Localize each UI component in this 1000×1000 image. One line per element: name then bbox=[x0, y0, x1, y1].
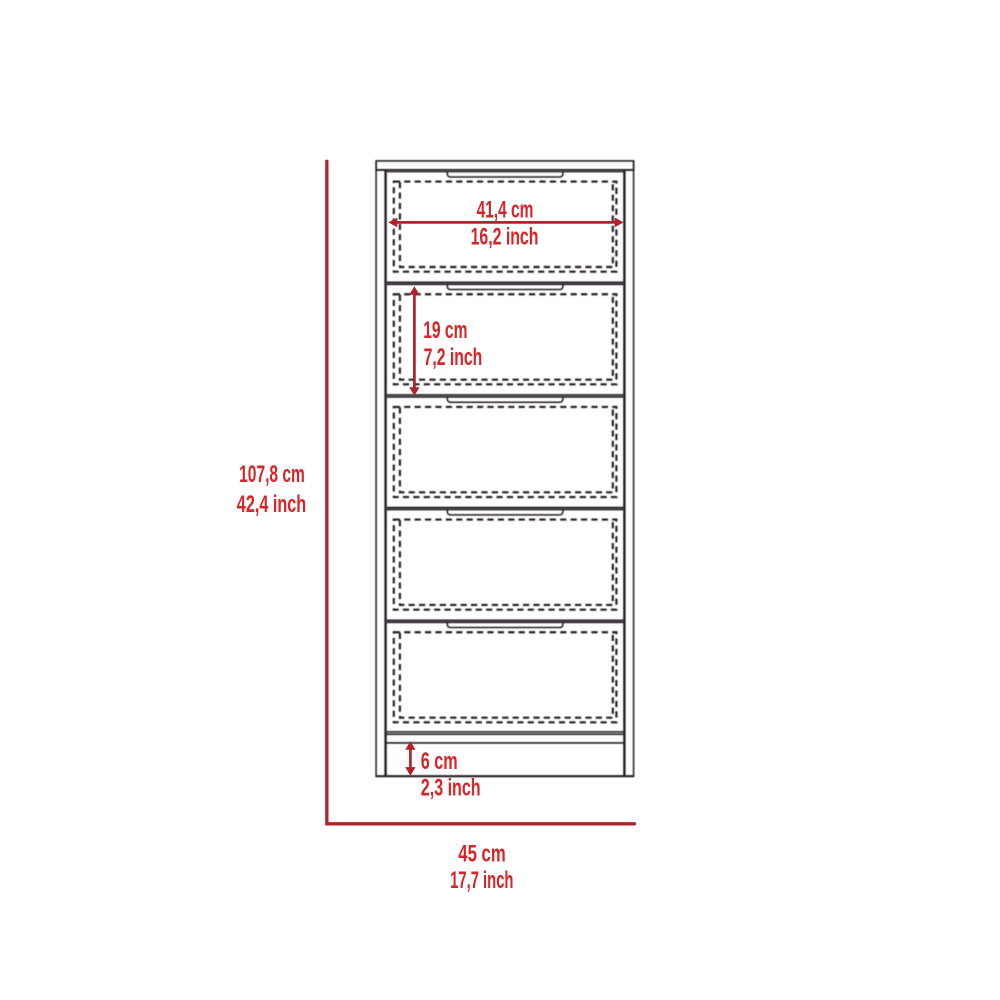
svg-text:19 cm: 19 cm bbox=[423, 318, 467, 344]
svg-text:16,2 inch: 16,2 inch bbox=[471, 224, 539, 250]
svg-text:7,2 inch: 7,2 inch bbox=[424, 345, 483, 371]
svg-text:17,7 inch: 17,7 inch bbox=[450, 868, 513, 894]
svg-text:6 cm: 6 cm bbox=[421, 748, 458, 775]
svg-text:45 cm: 45 cm bbox=[458, 841, 505, 868]
svg-text:107,8 cm: 107,8 cm bbox=[239, 462, 305, 488]
svg-text:2,3 inch: 2,3 inch bbox=[421, 776, 481, 802]
svg-text:42,4 inch: 42,4 inch bbox=[237, 491, 306, 518]
svg-text:41,4 cm: 41,4 cm bbox=[477, 197, 534, 223]
